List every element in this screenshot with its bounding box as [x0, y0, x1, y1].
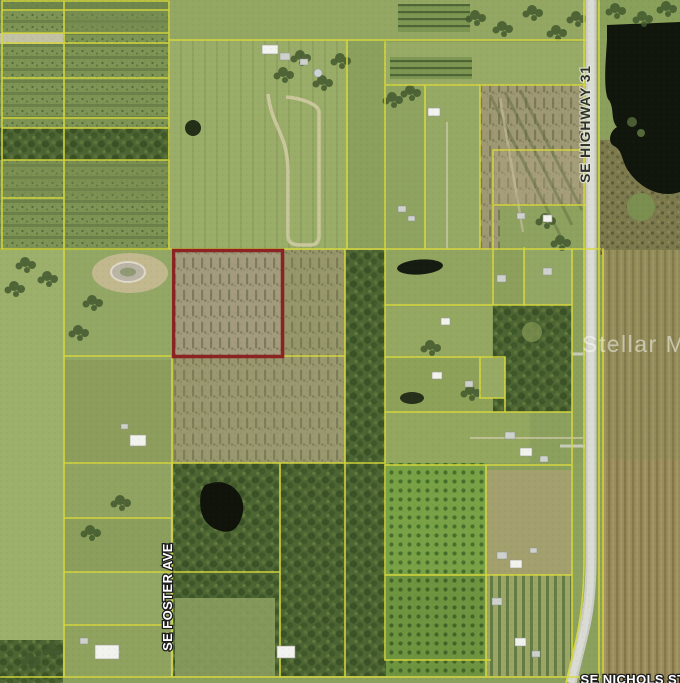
highway-label: SE HIGHWAY 31: [577, 65, 593, 183]
aerial-map-svg: SE HIGHWAY 31 SE FOSTER AVE SE NICHOLS S…: [0, 0, 680, 683]
aerial-parcel-map: SE HIGHWAY 31 SE FOSTER AVE SE NICHOLS S…: [0, 0, 680, 683]
watermark-text: Stellar MLS: [582, 331, 680, 357]
nichols-st-label: SE NICHOLS ST: [581, 672, 680, 683]
foster-ave-label: SE FOSTER AVE: [160, 543, 175, 651]
